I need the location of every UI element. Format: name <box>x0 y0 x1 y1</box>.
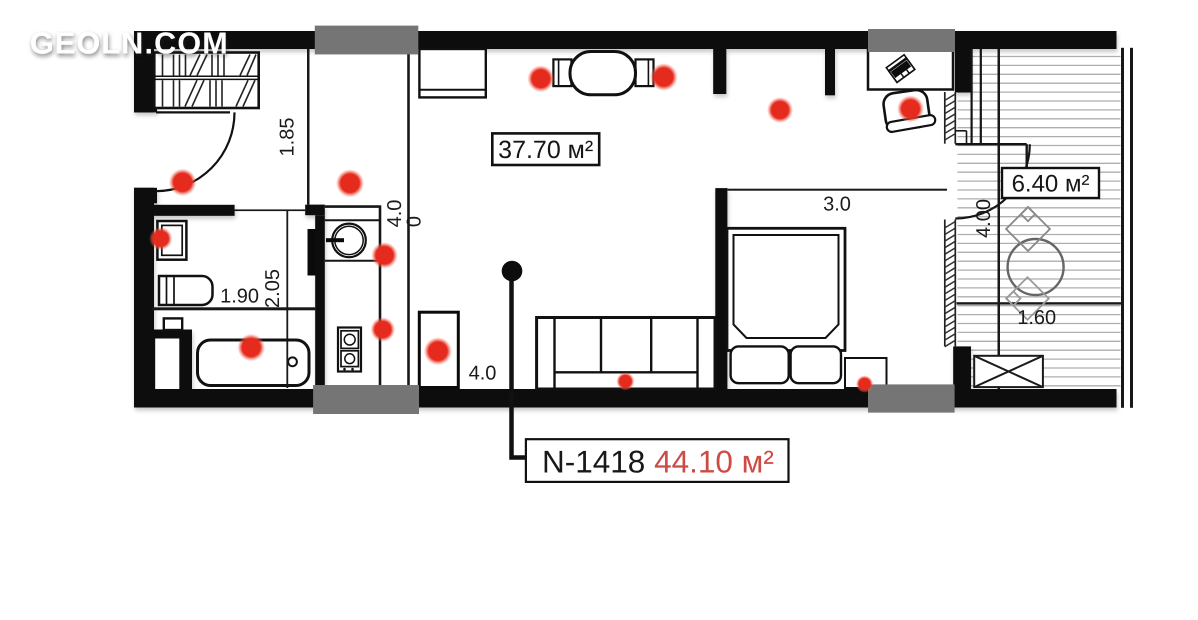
svg-text:4.0: 4.0 <box>469 363 497 385</box>
svg-text:6.40 м²: 6.40 м² <box>1012 171 1090 198</box>
svg-text:1.85: 1.85 <box>277 118 299 157</box>
svg-text:4.00: 4.00 <box>973 199 995 238</box>
svg-text:N-1418 44.10 м²: N-1418 44.10 м² <box>542 444 774 480</box>
svg-text:3.0: 3.0 <box>823 194 851 216</box>
svg-text:1.60: 1.60 <box>1017 307 1056 329</box>
svg-text:GEOLN.COM: GEOLN.COM <box>30 27 229 61</box>
svg-text:0: 0 <box>404 216 426 227</box>
svg-text:1.90: 1.90 <box>220 286 259 308</box>
svg-text:37.70 м²: 37.70 м² <box>498 136 593 164</box>
svg-text:2.05: 2.05 <box>262 269 284 308</box>
